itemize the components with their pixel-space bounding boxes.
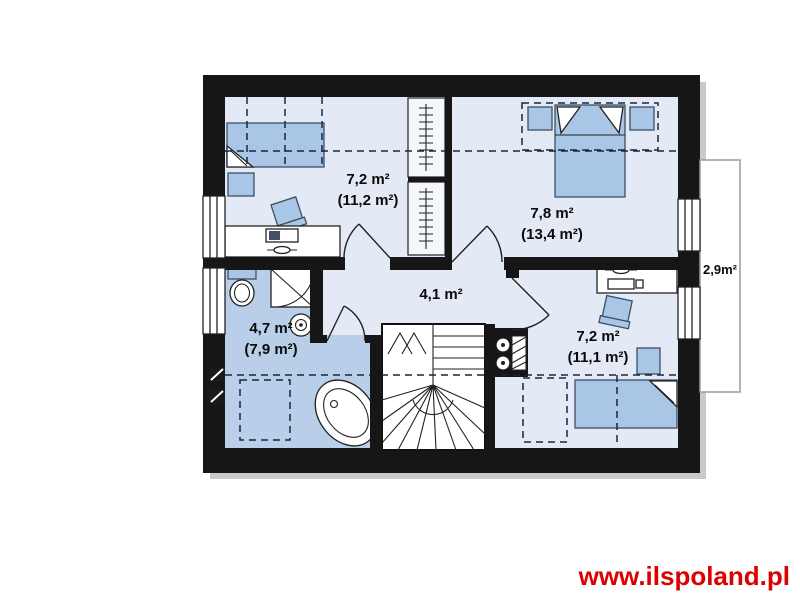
washbasin-drain (299, 323, 303, 327)
window-bathroom (203, 268, 225, 334)
computer-mouse (636, 280, 643, 288)
floor-plan-page: 7,2 m² (11,2 m²) 7,8 m² (13,4 m²) 4,1 m²… (0, 0, 800, 600)
wardrobe-column (408, 98, 445, 255)
toilet-tank (228, 269, 256, 279)
floor-plan-drawing: 7,2 m² (11,2 m²) 7,8 m² (13,4 m²) 4,1 m²… (0, 0, 800, 600)
label-bedroom-top-left-area: 7,2 m² (346, 171, 389, 188)
computer-screen (269, 231, 280, 240)
window-balcony-lower (678, 287, 700, 339)
wardrobe-divider-wall (408, 177, 445, 182)
label-bathroom-area: 4,7 m² (249, 320, 292, 337)
window-left-bedroom (203, 196, 225, 258)
label-bathroom-total: (7,9 m²) (244, 341, 297, 358)
desk-lamp (274, 247, 290, 254)
label-bedroom-top-left-total: (11,2 m²) (338, 192, 399, 209)
chimney-block (492, 328, 528, 377)
label-bedroom-bottom-right-area: 7,2 m² (576, 328, 619, 345)
label-bedroom-bottom-right-total: (11,1 m²) (568, 349, 629, 366)
computer (608, 279, 634, 289)
winder-staircase (382, 324, 485, 450)
label-bedroom-top-right-area: 7,8 m² (530, 205, 573, 222)
nightstand (637, 348, 660, 374)
nightstand-left (528, 107, 552, 130)
flue-center (501, 361, 505, 365)
label-bedroom-top-right-total: (13,4 m²) (521, 226, 583, 243)
flue-center (501, 343, 505, 347)
label-hall-area: 4,1 m² (419, 286, 462, 303)
nightstand (228, 173, 254, 196)
label-balcony-area: 2,9m² (703, 262, 738, 277)
nightstand-right (630, 107, 654, 130)
watermark-link[interactable]: www.ilspoland.pl (579, 561, 790, 592)
window-balcony-upper (678, 199, 700, 251)
